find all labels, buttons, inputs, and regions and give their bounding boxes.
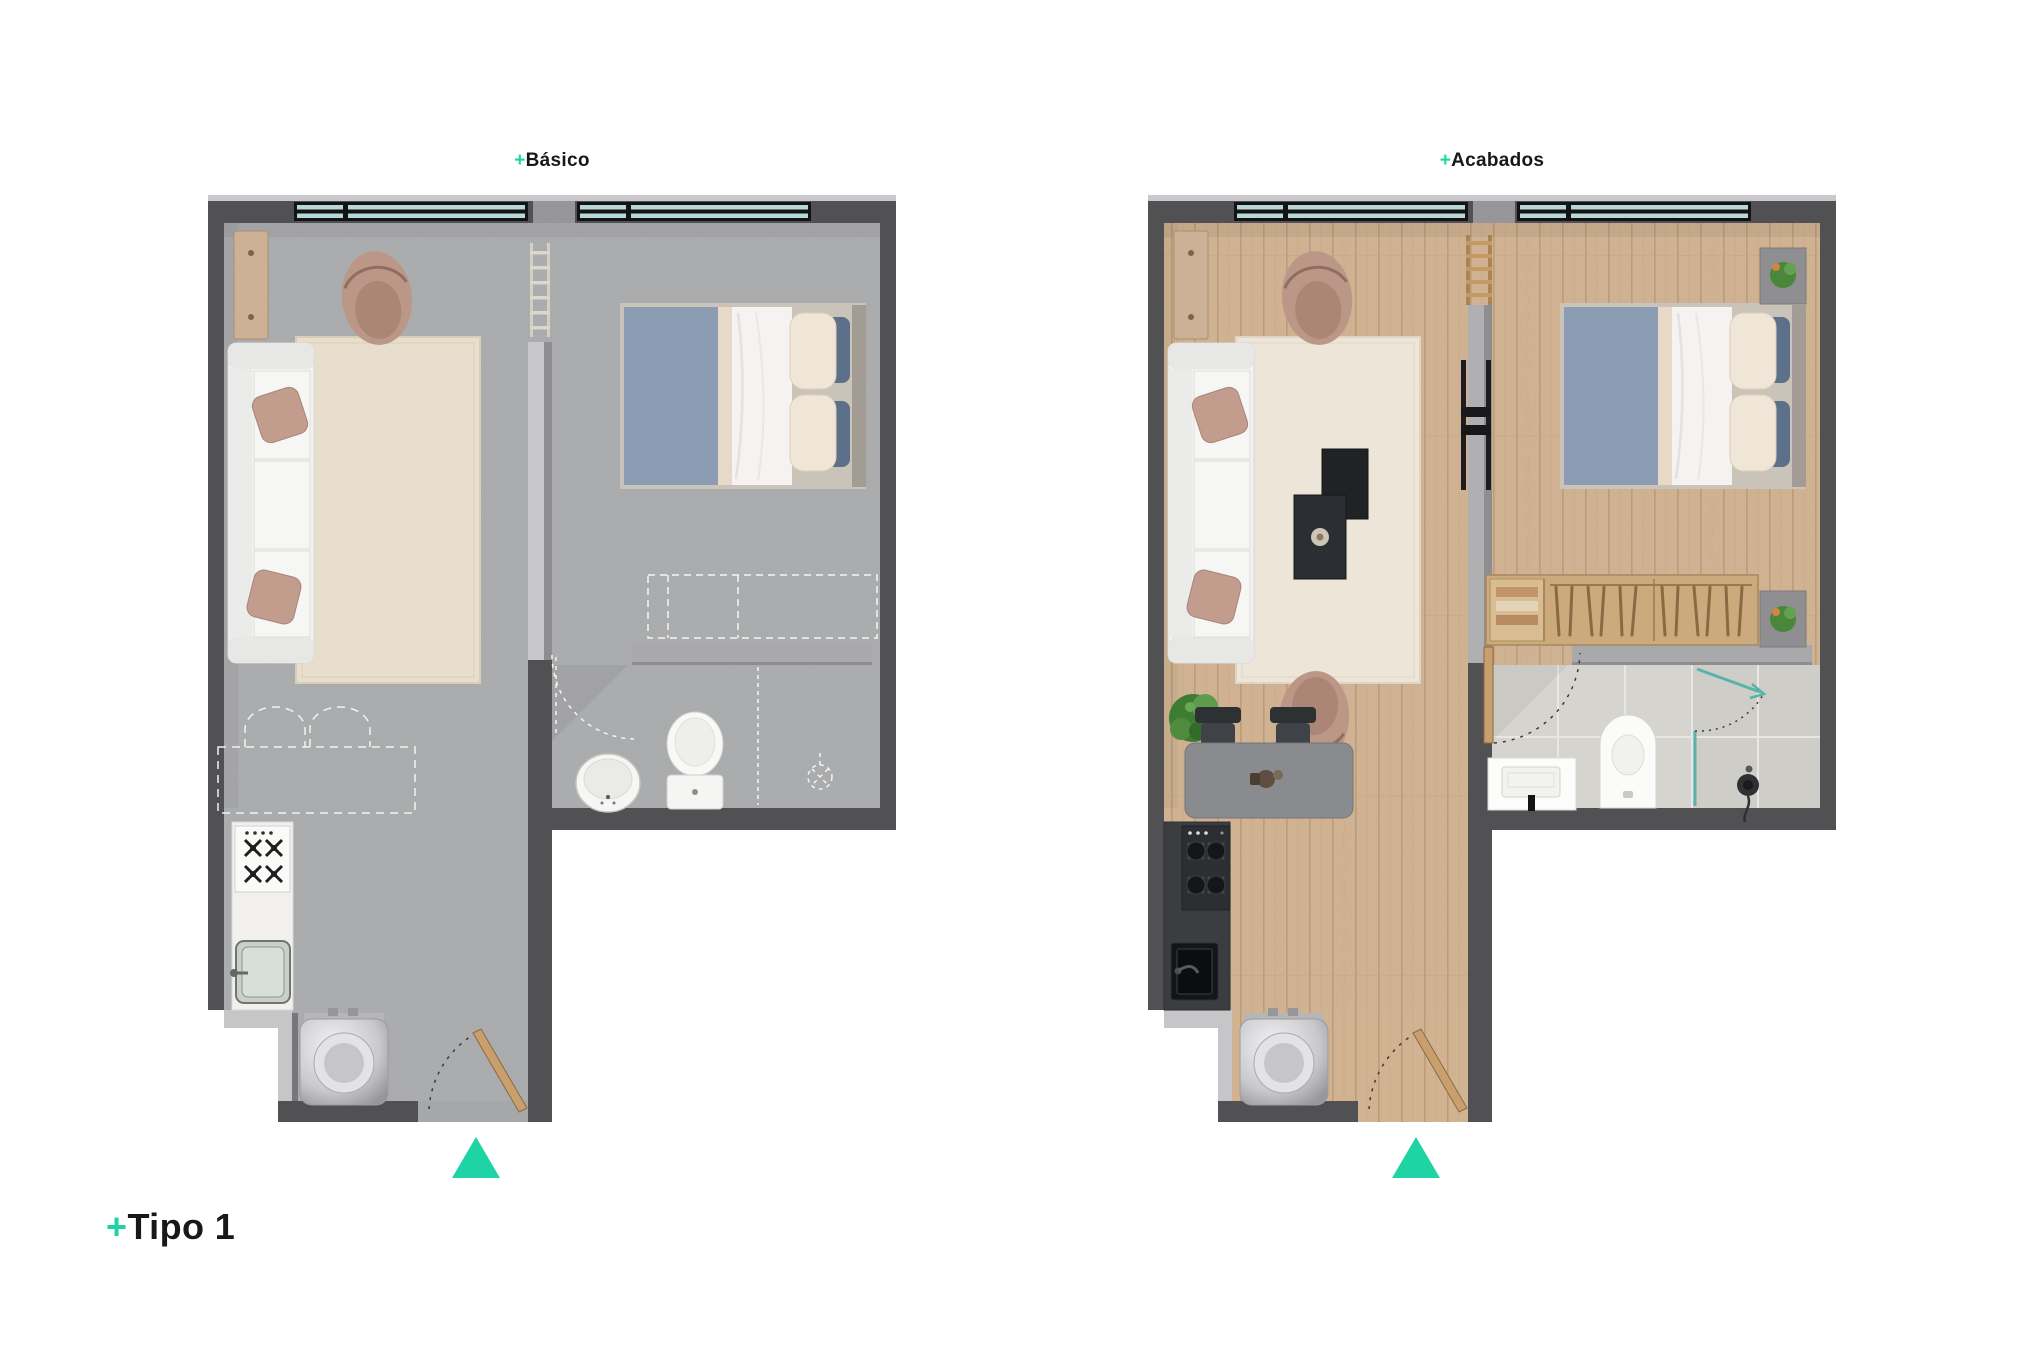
- washer: [1240, 1008, 1328, 1105]
- bathroom-top-wall: [632, 645, 872, 665]
- kitchen-sink: [230, 941, 290, 1003]
- door-leaf: [1484, 647, 1493, 743]
- plan-label-acabados: +Acabados: [1148, 150, 1836, 172]
- plan-label-basico: +Básico: [208, 150, 896, 172]
- bathroom-top-wall: [1572, 645, 1812, 665]
- window: [1517, 202, 1751, 221]
- wall-shelf: [234, 231, 268, 339]
- floorplan-basico-svg: [208, 195, 896, 1195]
- stool: [1270, 707, 1316, 723]
- floorplan-acabados-svg: [1148, 195, 1836, 1195]
- window: [577, 202, 811, 221]
- toilet: [667, 712, 723, 809]
- pillow: [1730, 395, 1776, 471]
- plus-accent: +: [1440, 150, 1451, 171]
- type-title: +Tipo 1: [106, 1206, 235, 1248]
- nightstand: [1760, 248, 1806, 304]
- type-title-text: Tipo 1: [127, 1206, 235, 1247]
- stool: [1195, 707, 1241, 723]
- window: [294, 202, 528, 221]
- kitchen-counter: [1164, 822, 1230, 1010]
- floorplan-basico: [208, 195, 896, 1195]
- nightstand: [1760, 591, 1806, 647]
- entry-direction-triangle: [452, 1137, 500, 1178]
- plus-accent: +: [106, 1206, 127, 1247]
- rug: [296, 337, 480, 683]
- washer: [300, 1008, 388, 1105]
- vanity-sink: [1488, 758, 1576, 811]
- window: [1234, 202, 1468, 221]
- sofa: [228, 343, 314, 663]
- wardrobe: [1486, 575, 1758, 645]
- pillow: [790, 313, 836, 389]
- cooktop: [1182, 826, 1230, 910]
- sofa: [1168, 343, 1254, 663]
- bed-blanket: [1564, 307, 1658, 485]
- cooktop: [235, 826, 290, 892]
- pedestal-sink: [576, 754, 640, 812]
- bed-blanket: [624, 307, 718, 485]
- kitchen-sink: [1171, 943, 1218, 1000]
- plan-label-basico-text: Básico: [526, 150, 590, 171]
- wall-shelf: [1174, 231, 1208, 339]
- double-bed: [620, 303, 866, 489]
- pillow: [790, 395, 836, 471]
- shadow: [224, 223, 880, 237]
- floorplan-acabados: [1148, 195, 1836, 1195]
- plan-label-acabados-text: Acabados: [1451, 150, 1544, 171]
- headboard: [852, 305, 866, 487]
- pillow: [1730, 313, 1776, 389]
- double-bed: [1560, 303, 1806, 489]
- entry-direction-triangle: [1392, 1137, 1440, 1178]
- headboard: [1792, 305, 1806, 487]
- plus-accent: +: [514, 150, 525, 171]
- shadow: [1164, 223, 1820, 237]
- kitchen-counter: [230, 822, 293, 1010]
- faucet: [1528, 795, 1535, 811]
- floorplan-sheet: +Básico +Acabados +Tipo 1: [0, 0, 2034, 1357]
- divider-partial-wall: [528, 342, 552, 660]
- toilet: [1600, 715, 1656, 808]
